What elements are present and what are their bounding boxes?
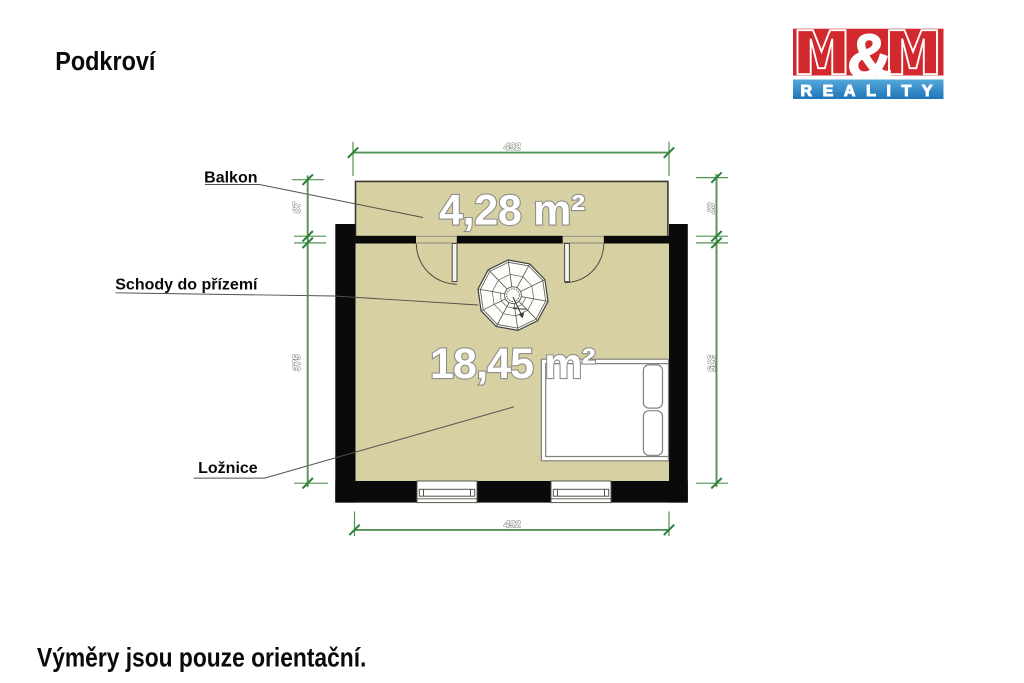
svg-text:Ložnice: Ložnice [198, 460, 258, 477]
svg-text:Podkroví: Podkroví [55, 48, 156, 76]
svg-text:87: 87 [705, 202, 716, 215]
svg-text:Schody do přízemí: Schody do přízemí [115, 277, 258, 294]
svg-text:&: & [847, 23, 892, 92]
svg-text:18,45 m²: 18,45 m² [430, 340, 595, 388]
svg-text:Výměry jsou pouze orientační.: Výměry jsou pouze orientační. [37, 644, 366, 673]
svg-text:Balkon: Balkon [204, 169, 257, 186]
svg-text:87: 87 [292, 201, 303, 214]
svg-text:375: 375 [292, 353, 303, 371]
svg-text:375: 375 [705, 354, 716, 372]
svg-text:4,28 m²: 4,28 m² [439, 186, 585, 234]
svg-text:492: 492 [503, 519, 521, 530]
svg-text:492: 492 [503, 142, 521, 153]
svg-text:REALITY: REALITY [801, 83, 944, 100]
